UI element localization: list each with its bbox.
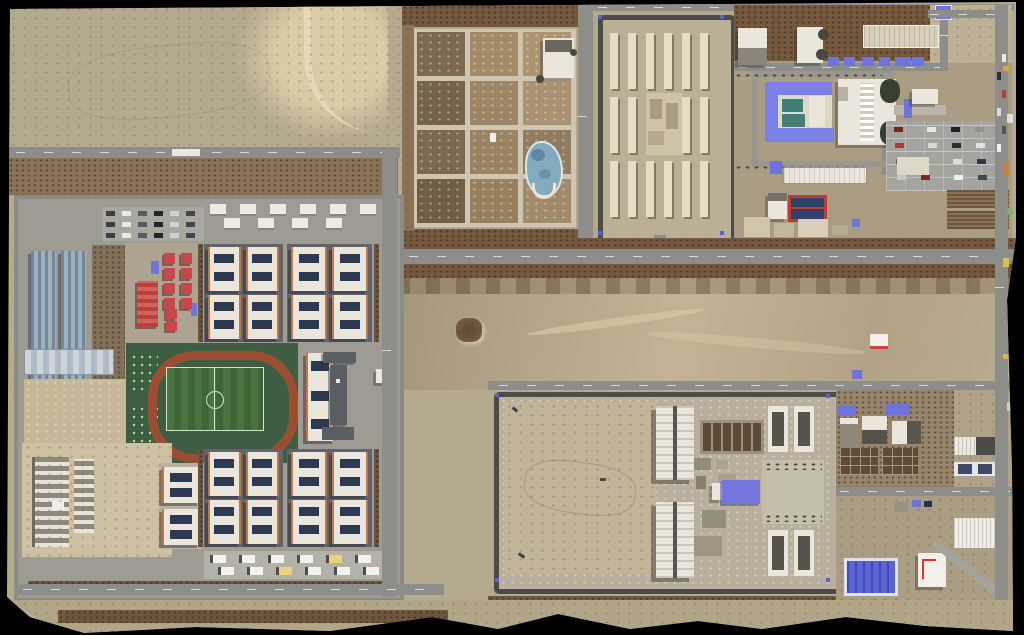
unit-row-building — [74, 459, 94, 533]
solar-panel — [214, 459, 234, 468]
apartment-building — [332, 452, 368, 496]
apartment-building — [208, 500, 241, 544]
cluster-building — [694, 458, 711, 470]
south-scrub-band — [58, 610, 448, 623]
apartment-building — [291, 295, 327, 339]
desert-berm-highlight — [238, 5, 388, 140]
farm-plot — [417, 32, 465, 76]
exercise-strip — [733, 423, 741, 451]
treestrip — [374, 449, 379, 547]
cluster-apartment — [162, 509, 200, 545]
small-blue-building — [770, 161, 782, 174]
road-mid-horizontal — [396, 249, 1024, 264]
vehicle-lot — [204, 551, 390, 579]
solar-panel — [252, 507, 272, 516]
apartment-building — [332, 247, 368, 291]
apartment-block-1 — [204, 244, 283, 342]
courtyard-trees-top — [764, 462, 822, 470]
brown-yard-grid — [840, 448, 878, 475]
admin-tree — [816, 49, 827, 60]
cell-block-west-2 — [656, 502, 694, 578]
apartment-block-2 — [287, 244, 372, 342]
barrack-building — [646, 161, 654, 217]
parked-car — [170, 233, 179, 238]
solar-panel — [252, 254, 272, 263]
barrack-building — [610, 33, 618, 89]
road-car — [997, 72, 1001, 80]
dark-gable — [798, 536, 810, 570]
parked-car — [921, 175, 930, 180]
blue-shed — [151, 261, 159, 274]
south-compound — [488, 388, 838, 600]
farm-plot — [417, 81, 465, 125]
barrack-building — [646, 33, 654, 89]
parked-vehicle — [210, 555, 226, 563]
parked-vehicle — [334, 567, 350, 575]
basketball-court — [781, 98, 804, 113]
dark-gable — [772, 412, 784, 446]
farm-north-hedge — [402, 5, 590, 27]
solar-panel — [170, 473, 192, 482]
road-car — [997, 144, 1001, 152]
graded-dirt-field — [396, 278, 1024, 390]
soccer-field — [166, 367, 264, 431]
pond-deep-patch — [531, 149, 545, 161]
north-compound — [592, 7, 734, 247]
parked-vehicle — [268, 555, 284, 563]
cluster-building — [696, 476, 706, 489]
apartment-building — [332, 295, 368, 339]
apartment-building — [246, 247, 279, 291]
barrack-building — [700, 33, 708, 89]
cluster-blue-bit — [852, 219, 860, 227]
apartment-building — [208, 247, 241, 291]
road-car — [1002, 90, 1006, 98]
solar-panel — [214, 254, 234, 263]
solar-panel — [252, 302, 272, 311]
yard-vehicle — [600, 478, 606, 481]
small-white-building — [870, 334, 888, 346]
entrance-walkway — [894, 105, 946, 115]
yard-track-mark — [521, 454, 639, 521]
cell-block-east — [768, 530, 788, 576]
roadside-white-structure — [172, 149, 200, 156]
farm-plot — [523, 81, 571, 125]
excavation-pit — [456, 318, 482, 342]
barrack-building — [682, 97, 690, 153]
treestrip — [198, 244, 203, 342]
exercise-strip — [703, 423, 711, 451]
solar-panel — [299, 459, 319, 468]
cluster-building — [832, 225, 848, 235]
pond-deep-patch — [539, 169, 551, 179]
barrack-building — [700, 161, 708, 217]
parked-vehicle — [297, 555, 313, 563]
cell-block-west-1 — [656, 406, 694, 480]
wall-corner-marker — [495, 578, 499, 582]
dark-school-building — [322, 351, 356, 441]
parked-car — [138, 211, 147, 216]
parked-car — [975, 127, 984, 132]
cell-block-east — [794, 530, 814, 576]
parked-vehicle — [218, 567, 234, 575]
satellite-screenshot — [0, 0, 1024, 635]
empty-yard — [504, 402, 656, 574]
roof-seam — [673, 502, 677, 578]
courtyard-inner-building — [809, 96, 825, 127]
parked-car — [978, 175, 987, 180]
red-hut — [181, 268, 192, 279]
dark-gable — [772, 536, 784, 570]
road-northeast-horizontal — [928, 10, 1008, 18]
solar-panel — [214, 320, 234, 329]
basketball-court — [781, 113, 806, 128]
exercise-strip — [753, 423, 761, 451]
apartment-building — [246, 452, 279, 496]
courtyard-bottom-wing — [765, 128, 834, 142]
farm-outbuilding — [543, 38, 574, 78]
red-hut — [166, 309, 177, 319]
solar-panel — [340, 525, 360, 534]
farm-plot — [417, 130, 465, 174]
blue-grey-section — [978, 464, 992, 474]
entrance-gate-canopy — [904, 99, 912, 118]
red-roof-edge — [870, 346, 888, 349]
road-west-horizontal — [8, 147, 400, 158]
parked-car — [977, 159, 986, 164]
solar-panel — [340, 272, 360, 281]
barrack-building — [628, 161, 636, 217]
barrack-building — [682, 161, 690, 217]
center-building-wing — [666, 103, 678, 129]
center-building-wing — [650, 99, 662, 119]
field-structure-white-red — [866, 332, 892, 356]
service-building — [224, 218, 240, 230]
courtyard-building — [765, 82, 834, 142]
tree-cluster — [880, 79, 900, 103]
apartment-building — [332, 500, 368, 544]
service-building — [210, 204, 226, 216]
parked-car — [976, 143, 985, 148]
wall-corner-marker — [720, 231, 724, 235]
wall-corner-marker — [598, 15, 602, 19]
parked-car — [154, 222, 163, 227]
parked-vehicle — [363, 567, 379, 575]
blue-building-west-wing — [712, 483, 722, 500]
road-residential-east — [382, 147, 397, 597]
striped-light-building — [24, 349, 114, 375]
parked-car — [928, 143, 937, 148]
wall-corner-marker — [826, 578, 830, 582]
treestrip — [374, 244, 379, 342]
staff-parking — [102, 207, 204, 241]
cluster-apartment — [162, 467, 200, 503]
parked-car — [154, 233, 163, 238]
rooftop-unit-column — [860, 83, 874, 141]
service-buildings-row — [210, 202, 392, 232]
roof-section-grey — [768, 193, 787, 201]
solar-panel — [214, 525, 234, 534]
dark-blue-structure — [924, 501, 932, 507]
center-building-wing — [648, 131, 664, 145]
solar-panel — [299, 302, 319, 311]
parked-car — [122, 222, 131, 227]
exercise-strip — [713, 423, 721, 451]
school-south-wing — [322, 427, 354, 440]
solar-panel — [252, 320, 272, 329]
parked-car — [894, 127, 903, 132]
service-building — [270, 204, 286, 216]
dark-gable — [798, 412, 810, 446]
apartment-block-4 — [287, 449, 372, 547]
parked-car — [122, 233, 131, 238]
solar-panel — [170, 530, 192, 539]
school-main-wing — [330, 365, 347, 425]
admin-sw-building — [768, 193, 787, 219]
barrack-building — [682, 33, 690, 89]
red-hut — [181, 283, 192, 294]
court-centerline — [791, 207, 824, 209]
roof-notch — [838, 87, 848, 101]
rough-ground-band — [8, 158, 398, 195]
courtyard-trees-bottom — [764, 514, 822, 522]
apartment-building — [246, 295, 279, 339]
roof-seam — [673, 406, 677, 480]
barrack-building — [664, 161, 672, 217]
wall-corner-marker — [826, 394, 830, 398]
farm-tree — [536, 75, 544, 83]
parked-car — [927, 127, 936, 132]
field-scrub-band — [396, 278, 1024, 294]
parked-car — [953, 159, 962, 164]
red-hut — [181, 253, 192, 264]
courtyard-ground — [778, 95, 832, 128]
solar-panel — [299, 507, 319, 516]
farm-outbuilding-roof — [545, 40, 572, 52]
road-residential-south — [14, 584, 444, 595]
annex-small-building — [894, 502, 908, 512]
service-building — [326, 218, 342, 230]
greenhouse — [954, 437, 998, 455]
parked-vehicle — [276, 567, 292, 575]
edge-artifact — [1007, 306, 1013, 319]
service-building — [360, 204, 376, 216]
farm-path-structure — [490, 133, 496, 142]
residential-compound — [14, 195, 404, 602]
mid-road-south-shoulder — [396, 264, 1024, 278]
farm-tree — [570, 49, 577, 56]
wall-corner-marker — [720, 15, 724, 19]
grey-block — [694, 536, 722, 556]
blue-roof-building — [862, 57, 874, 66]
satellite-photo — [0, 0, 1024, 635]
center-circle — [206, 391, 224, 409]
blue-roof-shed — [838, 405, 856, 416]
southwest-diagonal-road — [3, 600, 93, 635]
parked-car — [154, 211, 163, 216]
berm-edge — [304, 5, 381, 133]
parked-car — [106, 233, 115, 238]
grading-streak — [526, 306, 705, 339]
field-blue-shed — [852, 370, 862, 379]
red-hut — [166, 321, 177, 331]
parked-vehicle — [305, 567, 321, 575]
admin-tree — [818, 29, 829, 40]
blue-roof-building — [828, 57, 839, 66]
farm-plot — [470, 81, 518, 125]
solar-panel — [252, 477, 272, 486]
solar-panel — [252, 525, 272, 534]
small-white-shed — [52, 501, 64, 510]
parked-vehicle — [247, 567, 263, 575]
parked-car — [106, 222, 115, 227]
annex-building — [892, 421, 921, 444]
roof-section-grey — [738, 48, 767, 65]
solar-panel — [340, 459, 360, 468]
treestrip — [198, 449, 203, 547]
brown-yard-grid — [882, 448, 918, 475]
wall-corner-marker — [495, 393, 499, 397]
blue-roof-building — [912, 57, 924, 66]
solar-panel — [299, 525, 319, 534]
dark-roof-half — [907, 421, 921, 444]
rooftop-unit — [336, 379, 340, 383]
solar-panel — [170, 515, 192, 524]
service-building — [258, 218, 274, 230]
admin-south-long-building — [783, 167, 867, 184]
exercise-strip — [743, 423, 751, 451]
school-north-wing — [323, 352, 356, 363]
admin-building-nw — [738, 28, 767, 65]
solar-panel — [214, 507, 234, 516]
service-building — [292, 218, 308, 230]
cluster-building — [744, 217, 770, 237]
apartment-building — [291, 452, 327, 496]
annex-building — [862, 416, 887, 444]
barrack-building — [628, 97, 636, 153]
blue-roof-shed — [886, 403, 910, 415]
service-building — [300, 204, 316, 216]
cell-block-east — [768, 406, 788, 452]
apartment-building — [208, 452, 241, 496]
road-east-vertical — [995, 4, 1008, 632]
exercise-strip — [723, 423, 731, 451]
solar-panel — [299, 477, 319, 486]
solar-panel — [252, 459, 272, 468]
parked-car — [170, 211, 179, 216]
parked-car — [951, 127, 960, 132]
construction-zone — [22, 443, 172, 557]
barrack-building — [700, 97, 708, 153]
admin-parking-lot — [886, 121, 1000, 191]
solar-panel — [340, 320, 360, 329]
admin-compound — [734, 5, 1012, 251]
barrack-building — [664, 33, 672, 89]
solar-panel — [299, 254, 319, 263]
red-hut — [164, 283, 175, 294]
blue-roof-building — [895, 57, 911, 66]
barracks-center-building — [646, 93, 682, 155]
red-hut — [164, 268, 175, 279]
central-blue-building — [722, 480, 760, 504]
gatehouse — [912, 89, 938, 104]
red-pipe — [922, 559, 936, 561]
parked-vehicle — [355, 555, 371, 563]
parked-car — [186, 222, 195, 227]
yard-vehicle — [512, 406, 519, 412]
apartment-block-3 — [204, 449, 283, 547]
road-farm-vertical — [578, 4, 593, 252]
admin-blue-roof-row — [828, 56, 938, 67]
parked-car — [138, 222, 147, 227]
parked-car — [122, 211, 131, 216]
annex-road — [836, 487, 1014, 496]
service-building — [240, 204, 256, 216]
admin-tan-building — [897, 157, 929, 175]
parked-car — [138, 233, 147, 238]
farm-plot — [470, 179, 518, 223]
apartment-building — [291, 500, 327, 544]
admin-long-building — [863, 25, 939, 48]
apartment-building — [208, 295, 241, 339]
cell-block-east — [794, 406, 814, 452]
road-car — [1002, 126, 1006, 134]
large-red-building — [137, 281, 158, 327]
blue-grey-section — [958, 464, 972, 474]
red-hut — [164, 298, 175, 309]
white-cluster — [160, 463, 202, 549]
dark-roof-half — [862, 430, 887, 444]
road-car — [997, 108, 1001, 116]
solar-panel — [170, 488, 192, 497]
blue-warehouse — [844, 558, 898, 596]
solar-panel — [214, 272, 234, 281]
solar-panel — [340, 302, 360, 311]
admin-treeline-1 — [734, 73, 882, 78]
wall-corner-marker — [598, 231, 602, 235]
road-car — [1002, 54, 1006, 62]
service-annex — [836, 390, 1014, 632]
barrack-building — [610, 161, 618, 217]
unit-row-building — [32, 457, 69, 547]
solar-panel — [299, 320, 319, 329]
red-hut — [181, 298, 192, 309]
farm-plot — [417, 179, 465, 223]
parked-car — [895, 143, 904, 148]
cluster-building — [716, 460, 728, 469]
farm-plot — [470, 32, 518, 76]
parked-vehicle — [326, 555, 342, 563]
courtyard — [762, 460, 824, 524]
parked-car — [106, 211, 115, 216]
solar-panel — [340, 477, 360, 486]
desert-tracks — [65, 35, 273, 128]
parked-car — [952, 143, 961, 148]
exercise-yard — [700, 420, 764, 454]
parked-car — [186, 233, 195, 238]
farm-compound — [402, 5, 590, 252]
red-hut — [164, 253, 175, 264]
barrack-building — [610, 97, 618, 153]
grey-block — [702, 510, 726, 528]
yard-vehicle — [518, 552, 525, 558]
annex-building — [840, 418, 858, 450]
parked-car — [897, 175, 906, 180]
greenhouse — [954, 462, 998, 476]
solar-panel — [214, 477, 234, 486]
greenhouse — [954, 518, 1001, 548]
desert-northwest — [8, 5, 400, 148]
